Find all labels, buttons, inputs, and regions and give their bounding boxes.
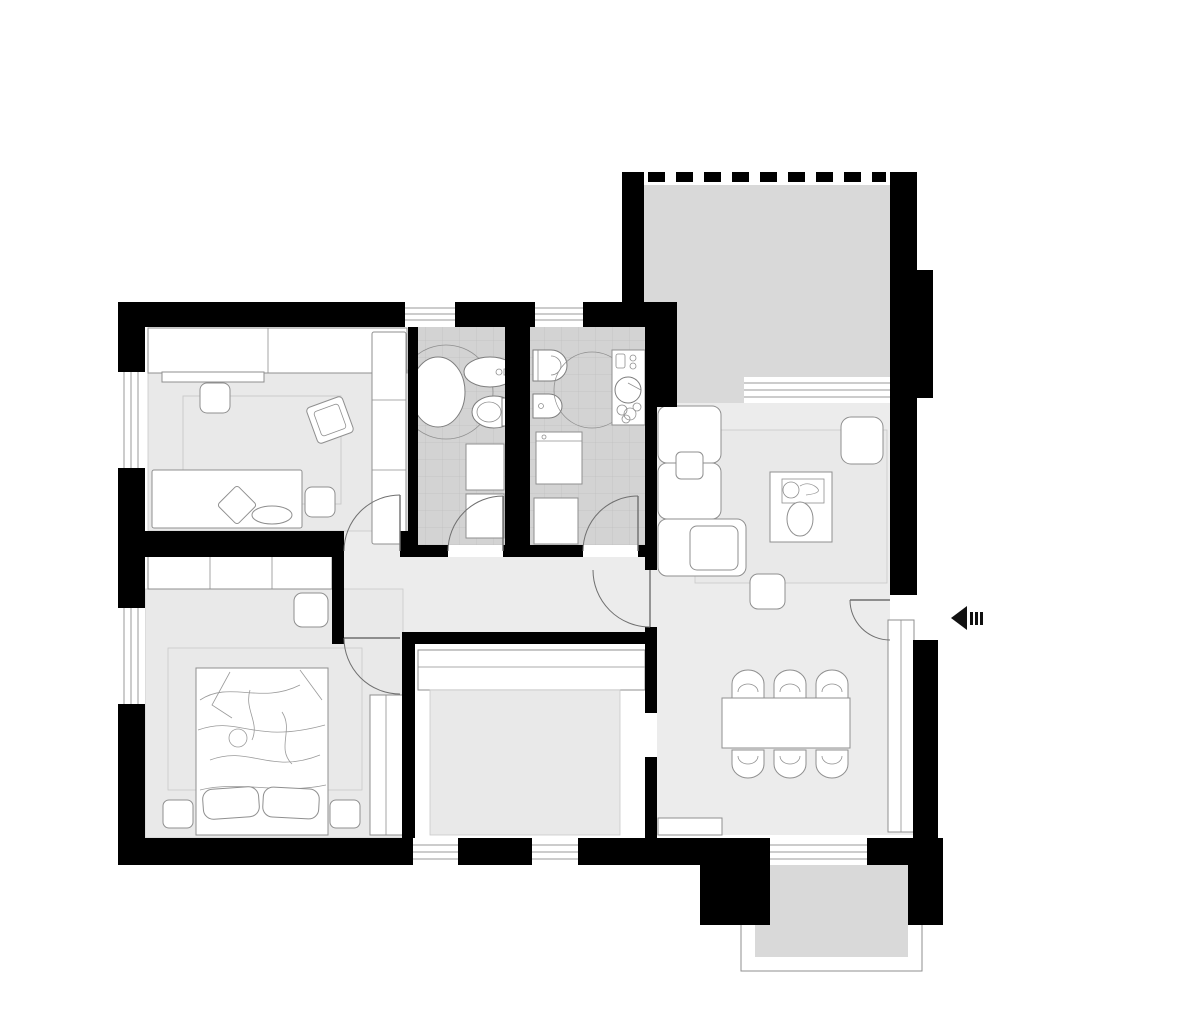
pillow: [202, 786, 260, 820]
window-dining-terrace: [770, 838, 867, 865]
pillow: [262, 787, 319, 820]
room-bathroom-2: [530, 327, 645, 545]
pouf: [750, 574, 785, 609]
floor-plan-drawing: Apartment floor plan: [0, 0, 1200, 1012]
nightstand: [163, 800, 193, 828]
pouf: [294, 593, 328, 627]
double-bed: [196, 668, 328, 835]
dining-chairs-top: [732, 670, 848, 698]
pouf: [305, 487, 335, 517]
bathroom-partition: [505, 327, 530, 545]
window-kitchen-bottom-2: [532, 838, 578, 865]
wall-top: [118, 302, 405, 327]
toilet: [533, 350, 567, 381]
window-master-left: [118, 608, 145, 704]
dining-chairs-bottom: [732, 750, 848, 778]
sideboard: [658, 818, 722, 835]
storage-cabinet: [466, 444, 504, 490]
wall-right-lower: [913, 640, 938, 838]
window-kitchen-bottom-1: [413, 838, 458, 865]
pillow: [252, 506, 292, 524]
nightstand: [330, 800, 360, 828]
kids-wardrobe: [372, 332, 406, 544]
window-bathroom2-top: [535, 302, 583, 327]
room-master-bedroom: [145, 556, 403, 838]
floor-plan-page: Apartment floor plan: [0, 0, 1200, 1012]
wall-right-upper: [890, 172, 917, 595]
room-kids-bedroom: [148, 328, 408, 544]
storage-cabinet: [466, 494, 504, 538]
window-living-terrace: [744, 377, 890, 403]
kitchen-counter: [418, 650, 645, 690]
vase: [787, 502, 813, 536]
kitchen-rug: [430, 690, 620, 835]
window-bathroom1-top: [405, 302, 455, 327]
coffee-table: [770, 472, 832, 542]
master-wardrobe-top: [148, 556, 332, 589]
vanity-sink: [612, 350, 645, 425]
sink: [615, 377, 641, 403]
entrance-arrow-icon: [951, 606, 983, 630]
dining-table: [722, 698, 850, 748]
washing-machine: [536, 432, 582, 484]
terrace-top: [644, 177, 890, 403]
window-kids-left: [118, 372, 145, 468]
armchair: [841, 417, 883, 464]
master-wardrobe-right: [370, 695, 403, 835]
room-kitchen: [418, 650, 645, 835]
shelf: [162, 372, 264, 382]
single-bed: [152, 470, 302, 528]
terrace-wall-left: [622, 172, 644, 304]
pouf: [200, 383, 230, 413]
desk: [148, 328, 407, 373]
cabinet: [534, 498, 578, 544]
